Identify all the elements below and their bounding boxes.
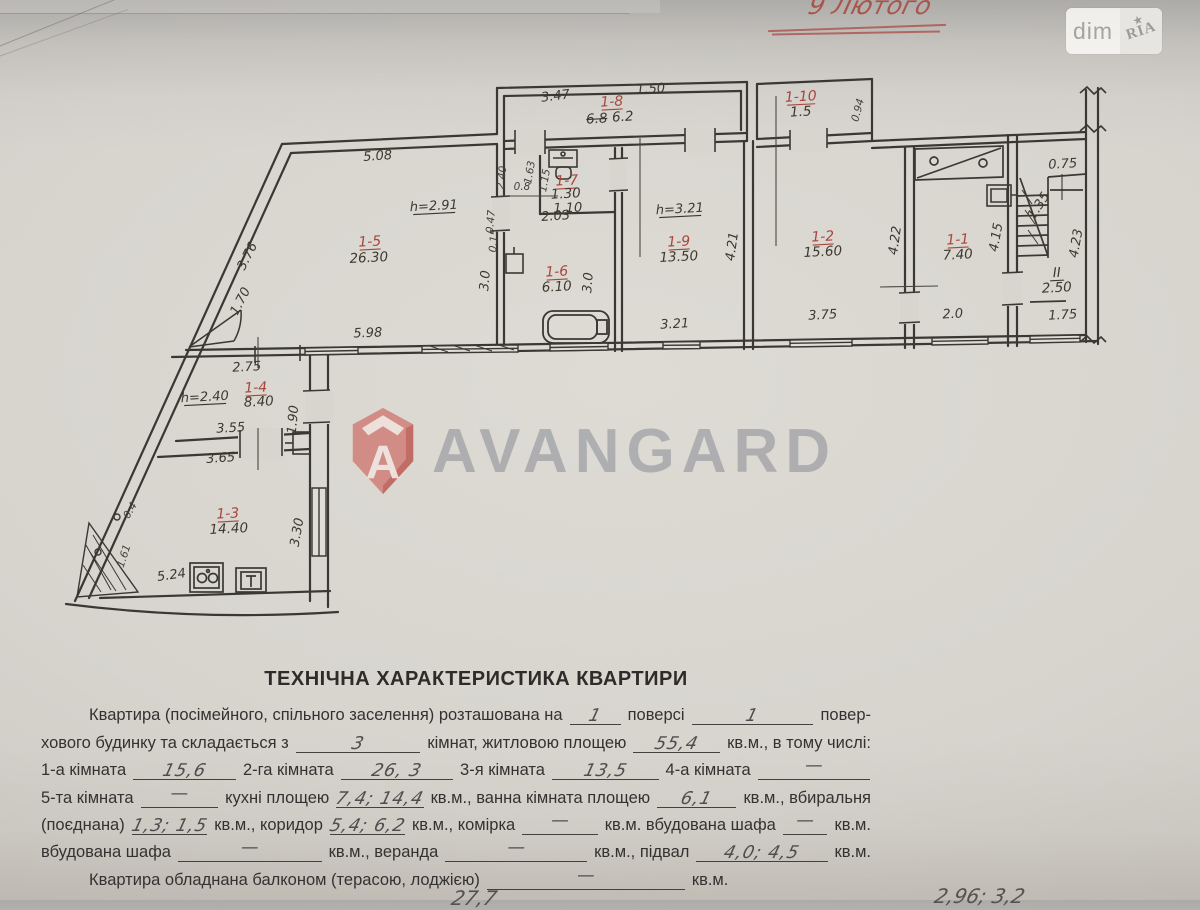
form-handwritten-value: 1	[586, 706, 603, 726]
plan-label: 4.22	[886, 225, 905, 256]
form-handwritten-value: 7,4; 14,4	[334, 789, 426, 809]
plan-label: 3.65	[206, 450, 236, 467]
form-blank: 3	[296, 728, 421, 753]
form-line: хового будинку та складається з3кімнат, …	[38, 725, 874, 752]
plan-label: 1-5	[358, 233, 382, 250]
form-blank: —	[758, 755, 870, 780]
plan-label: 2.03	[541, 208, 571, 225]
form-printed-text: кв.м., ванна кімната площею	[428, 789, 654, 808]
form-line: (поєднана)1,3; 1,5кв.м., коридор5,4; 6,2…	[38, 808, 874, 835]
plan-label: 3.55	[216, 420, 246, 436]
form-handwritten-value: 26, 3	[370, 761, 425, 781]
form-blank: 1	[692, 700, 814, 725]
plan-label: 3.75	[808, 307, 838, 323]
plan-label: 6.2	[612, 108, 634, 125]
form-printed-text: (поєднана)	[38, 816, 128, 835]
plan-label: 1.75	[1048, 307, 1078, 323]
form-handwritten-value: —	[171, 784, 189, 804]
form-printed-text: 4-а кімната	[663, 761, 754, 780]
plan-label: 0.4	[121, 500, 140, 520]
form-blank: 15,6	[133, 755, 236, 780]
form-printed-text: кв.м., веранда	[326, 843, 442, 862]
form-printed-text: поверсі	[625, 706, 688, 725]
form-handwritten-value: —	[507, 838, 525, 858]
form-printed-text: кв.м.	[689, 871, 732, 890]
cupboard-icon	[915, 146, 1003, 180]
plan-label: 3.76	[235, 240, 262, 273]
form-printed-text: 1-а кімната	[38, 761, 129, 780]
plan-label: 2.0	[942, 306, 963, 322]
plan-label: 0.94	[849, 97, 867, 123]
form-printed-text: кв.м.	[831, 816, 874, 835]
form-handwritten-value: —	[241, 838, 259, 858]
form-printed-text: Квартира (посімейного, спільного заселен…	[86, 706, 566, 725]
form-blank: —	[487, 865, 685, 890]
plan-label: 3.21	[660, 316, 690, 332]
plan-label: 14.40	[209, 520, 248, 538]
form-printed-text: кв.м. вбудована шафа	[602, 816, 779, 835]
plan-label: 4.15	[987, 222, 1007, 253]
plan-label: 3.47	[540, 87, 571, 106]
form-line: вбудована шафа—кв.м., веранда—кв.м., під…	[38, 835, 874, 862]
plan-label: 3.0	[580, 272, 597, 294]
form-printed-text: вбудована шафа	[38, 843, 174, 862]
stove-icon	[190, 563, 223, 592]
form-handwritten-value: 5,4; 6,2	[327, 816, 407, 836]
form-handwritten-value: 15,6	[161, 761, 209, 781]
form-line: 1-а кімната15,62-га кімната26, 33-я кімн…	[38, 753, 874, 780]
form-handwritten-value: 1,3; 1,5	[129, 816, 209, 836]
cutoff-handwriting-left: 27,7	[449, 886, 500, 910]
form-line: 5-та кімната—кухні площею7,4; 14,4кв.м.,…	[38, 780, 874, 807]
form-handwritten-value: 4,0; 4,5	[722, 843, 802, 863]
form-blank: —	[522, 810, 598, 835]
form-blank: —	[783, 810, 828, 835]
form-line: Квартира (посімейного, спільного заселен…	[38, 698, 874, 725]
floorplan-labels: 5.08h=2.911-526.305.983.761.702.75h=2.40…	[115, 81, 1087, 585]
form-printed-text: кв.м., комірка	[409, 816, 518, 835]
form-blank: 1	[570, 700, 621, 725]
plan-label: 3.0	[477, 270, 494, 292]
plan-label: 4.23	[1067, 228, 1087, 259]
plan-label: 4.21	[723, 231, 742, 262]
technical-characteristics-form: ТЕХНІЧНА ХАРАКТЕРИСТИКА КВАРТИРИ Квартир…	[38, 668, 874, 890]
wall-break-marks	[1080, 87, 1106, 343]
plan-label: 0.75	[1048, 156, 1078, 172]
plan-label: 0.15	[487, 228, 501, 253]
door-swing-arc	[189, 310, 241, 347]
form-printed-text: кв.м., підвал	[591, 843, 692, 862]
plan-label: 0.8	[514, 181, 531, 193]
form-blank: —	[178, 837, 322, 862]
plan-label: 7.40	[942, 246, 973, 264]
plan-label: 26.30	[349, 249, 388, 267]
form-handwritten-value: 13,5	[581, 761, 629, 781]
form-blank: 4,0; 4,5	[696, 837, 827, 862]
plan-label: 1.90	[285, 405, 302, 435]
form-title: ТЕХНІЧНА ХАРАКТЕРИСТИКА КВАРТИРИ	[38, 668, 874, 691]
form-handwritten-value: 55,4	[653, 734, 701, 754]
window-symbols	[305, 335, 1080, 556]
plan-label: 1.50	[636, 81, 666, 98]
plan-label: 1.35	[1025, 190, 1053, 222]
dimension-extension-lines	[258, 96, 938, 470]
plan-label: 5.24	[156, 566, 187, 585]
form-printed-text: кв.м., коридор	[211, 816, 326, 835]
wash-sink-icon	[987, 185, 1017, 206]
form-handwritten-value: 1	[744, 706, 761, 726]
form-lines: Квартира (посімейного, спільного заселен…	[38, 698, 874, 890]
form-blank: 5,4; 6,2	[330, 810, 405, 835]
kitchen-sink-icon	[236, 568, 266, 592]
form-blank: 55,4	[633, 728, 720, 753]
form-handwritten-value: 3	[349, 734, 366, 754]
plan-label: 5.98	[353, 326, 382, 342]
form-printed-text: 3-я кімната	[457, 761, 548, 780]
plan-label: II	[1052, 265, 1061, 281]
plan-label: 2.50	[1041, 279, 1072, 297]
form-printed-text: кухні площею	[222, 789, 332, 808]
plan-label: 1.61	[115, 543, 134, 569]
bathtub-icon	[543, 311, 609, 343]
form-blank: 26, 3	[341, 755, 453, 780]
form-printed-text: повер-	[817, 706, 874, 725]
scanned-floorplan-document: { "colors": { "paper": "#d8d5cf", "paper…	[0, 0, 1200, 900]
plan-label: 8.40	[243, 393, 274, 411]
form-printed-text: хового будинку та складається з	[38, 734, 292, 753]
form-handwritten-value: —	[805, 756, 823, 776]
form-handwritten-value: 6,1	[679, 789, 715, 809]
plan-label: 1.70	[228, 285, 255, 318]
plan-label: 2.75	[232, 359, 262, 375]
form-blank: 6,1	[657, 783, 736, 808]
form-blank: —	[445, 837, 587, 862]
form-printed-text: кв.м.	[832, 843, 875, 862]
form-printed-text: кв.м., в тому числі:	[724, 734, 874, 753]
plan-label: 2.40	[495, 165, 510, 190]
plan-label: 5.08	[363, 148, 393, 165]
form-printed-text: кімнат, житловою площею	[424, 734, 629, 753]
plan-label: 1.5	[790, 103, 812, 120]
form-blank: 7,4; 14,4	[336, 783, 423, 808]
cutoff-handwriting-right: 2,96; 3,2	[932, 884, 1027, 908]
plan-label: 13.50	[659, 248, 698, 266]
form-printed-text: 5-та кімната	[38, 789, 137, 808]
plan-label: 3.30	[288, 517, 308, 548]
form-handwritten-value: —	[551, 811, 569, 831]
form-handwritten-value: —	[796, 811, 814, 831]
form-handwritten-value: —	[577, 866, 595, 886]
plan-label: 15.60	[803, 243, 842, 261]
plan-label: 6.10	[541, 278, 572, 296]
form-printed-text: кв.м., вбиральня	[740, 789, 874, 808]
form-printed-text: 2-га кімната	[240, 761, 337, 780]
form-printed-text: Квартира обладнана балконом (терасою, ло…	[86, 871, 483, 890]
plan-label: 1-8	[600, 93, 624, 110]
form-blank: 1,3; 1,5	[132, 810, 208, 835]
form-blank: 13,5	[552, 755, 659, 780]
form-blank: —	[141, 783, 219, 808]
